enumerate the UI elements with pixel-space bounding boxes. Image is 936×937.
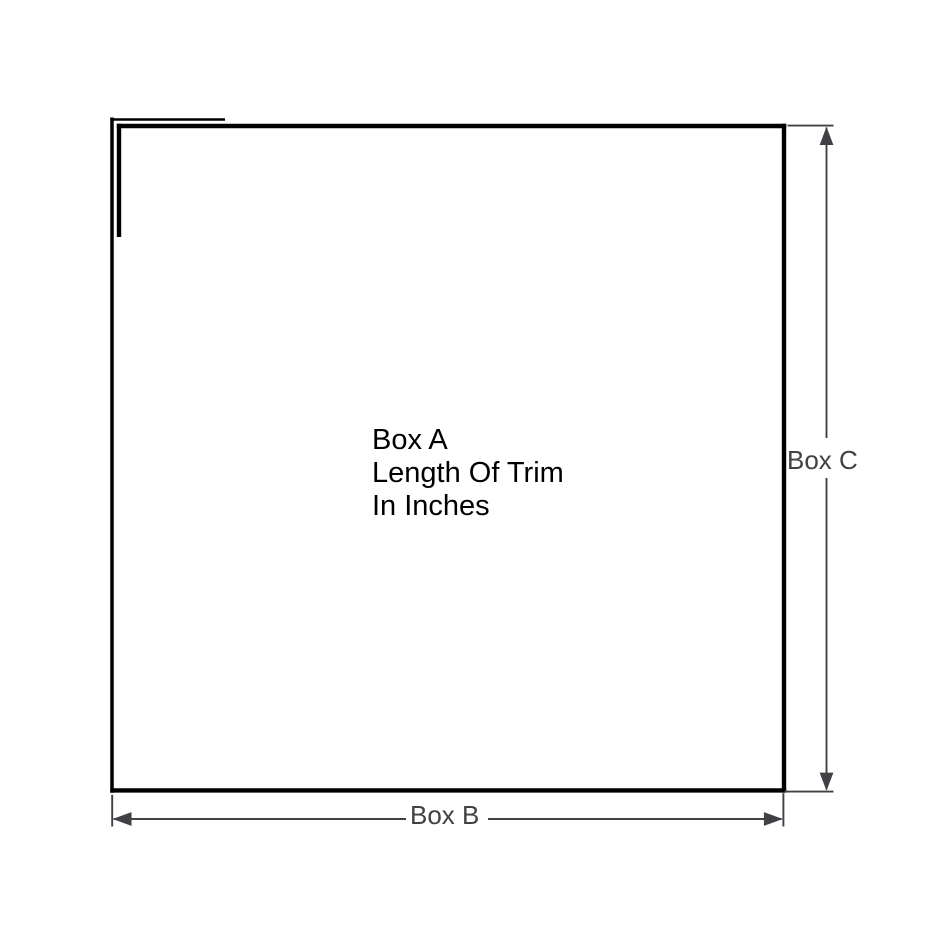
trim-length-diagram: Box A Length Of Trim In Inches Box B Box… <box>0 0 936 937</box>
arrow-up-icon <box>820 127 834 145</box>
box-b-label: Box B <box>410 800 479 830</box>
box-a-label: Box A Length Of Trim In Inches <box>372 424 564 523</box>
box-a-label-line-2: Length Of Trim <box>372 457 564 490</box>
arrow-left-icon <box>113 812 132 826</box>
box-a-label-line-3: In Inches <box>372 490 564 523</box>
arrow-right-icon <box>764 812 783 826</box>
trim-corner-detail <box>110 120 225 238</box>
box-c-label: Box C <box>787 445 858 475</box>
arrow-down-icon <box>820 773 834 791</box>
box-a-label-line-1: Box A <box>372 424 564 457</box>
